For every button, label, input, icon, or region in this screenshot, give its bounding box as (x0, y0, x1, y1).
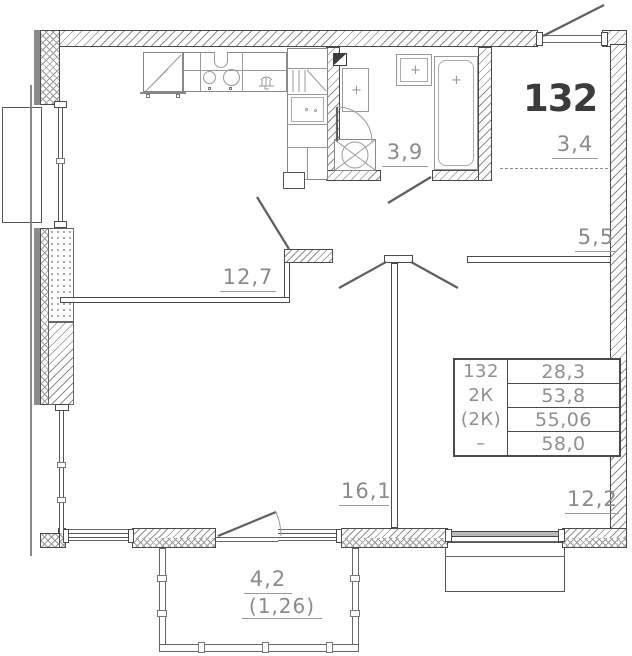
wall-hatch (342, 529, 447, 538)
wall-crosshatch (342, 538, 447, 547)
plumbing-point-mark: + (451, 74, 462, 87)
room-label-corridor: 5,5 (575, 226, 617, 252)
window-post (128, 529, 134, 543)
balcony-door-threshold (216, 541, 278, 542)
ac-basket-bottom-line (445, 556, 565, 557)
table-label: – (455, 431, 507, 455)
floor-plan-132: + + + 12,7 3,9 3,4 5,5 16,1 12,2 4, (0, 0, 632, 656)
cabinet-knob (305, 108, 308, 111)
cabinet-divider (287, 94, 328, 95)
area-table-values: 28,3 53,8 55,06 58,0 (508, 360, 619, 455)
stove-knob (229, 87, 232, 90)
stove-burner-icon (203, 71, 216, 84)
door-swing-arc (337, 107, 372, 142)
window-frame-cap (55, 404, 69, 411)
fridge-foot (176, 94, 180, 98)
entrance-jamb-right (601, 32, 608, 46)
entrance-sill (543, 35, 601, 36)
window-mullion (57, 497, 66, 503)
window-rail (278, 540, 341, 541)
wall-bathroom-bottom-left (326, 170, 381, 181)
window-frame-cap (54, 101, 67, 108)
table-value: 55,06 (508, 408, 619, 432)
glazing-mullion (157, 575, 167, 582)
cabinet-knob (314, 109, 317, 112)
wall-bottom-seg-3 (562, 528, 627, 548)
plumbing-point-mark: + (410, 64, 421, 77)
window-post (445, 529, 452, 542)
glazing-mullion (350, 610, 360, 617)
washing-machine-icon (334, 139, 376, 171)
counter-divider (242, 52, 243, 92)
bathroom-door-leaf (388, 177, 431, 203)
window-balcony (278, 533, 341, 538)
balcony-door-leaf (218, 512, 276, 536)
balcony-glazing-left (159, 548, 166, 648)
wall-crosshatch (133, 538, 215, 547)
table-value: 58,0 (508, 432, 619, 455)
table-label: 132 (455, 360, 507, 384)
bedroom-1-door-leaf (339, 262, 386, 288)
window-rail (66, 540, 131, 541)
window-rail (278, 529, 341, 530)
zone-boundary-dashed-line (500, 168, 608, 169)
entrance-door-leaf (543, 5, 604, 36)
balcony-door-threshold (216, 537, 278, 538)
room-label-balcony: 4,2 (244, 568, 292, 594)
glazing-mullion (350, 575, 360, 582)
plumbing-point-mark: + (351, 84, 362, 97)
wall-corridor-bedroom-2 (467, 256, 611, 263)
table-value: 53,8 (508, 384, 619, 408)
cabinet-divider (287, 124, 328, 125)
wall-left-seg-1 (40, 30, 60, 105)
room-label-balcony-reduced: (1,26) (242, 595, 322, 619)
wall-hatch (133, 529, 215, 538)
room-label-bathroom: 3,9 (382, 141, 428, 167)
cabinet-divider (287, 68, 328, 69)
wall-bottom-seg-2 (341, 528, 448, 548)
table-label: (2К) (455, 408, 507, 432)
ac-basket-left (2, 107, 42, 223)
sink-icon (214, 52, 228, 68)
wall-top (56, 30, 538, 47)
fridge-foot (146, 94, 150, 98)
entrance-sill (543, 42, 601, 43)
entrance-jamb-left (536, 32, 543, 46)
area-info-table: 132 2К (2К) – 28,3 53,8 55,06 58,0 (453, 358, 621, 457)
glazing-mullion (326, 642, 333, 653)
window-post (336, 529, 342, 543)
glazing-mullion (198, 642, 205, 653)
window-bedroom-2 (448, 531, 562, 537)
window-mullion (57, 462, 66, 468)
wall-door-post (384, 255, 413, 263)
window-rail (448, 541, 562, 542)
room-label-kitchen-living: 12,7 (220, 266, 276, 292)
room-label-hallway: 3,4 (552, 133, 598, 159)
window-rail (66, 529, 131, 530)
window-mullion (56, 158, 65, 164)
room-label-bedroom-2: 12,2 (565, 488, 619, 514)
table-value: 28,3 (508, 360, 619, 384)
wall-kitchen-bottom (60, 297, 290, 303)
glazing-mullion (157, 610, 167, 617)
counter-divider (200, 52, 201, 92)
bedroom-2-door-leaf (411, 262, 458, 288)
cabinet-divider (307, 147, 308, 180)
wall-bottom-seg-1 (132, 528, 216, 548)
wall-right (610, 44, 627, 548)
window-frame-cap (54, 221, 67, 228)
vent-shaft-icon (333, 53, 347, 66)
kitchen-duct-box (283, 172, 305, 189)
balcony-glazing-right (352, 548, 359, 648)
stove-burner-icon (223, 69, 240, 86)
window-kitchen-living (58, 105, 63, 228)
area-table-labels: 132 2К (2К) – (455, 360, 508, 455)
wall-left-seg-3 (40, 533, 60, 548)
fridge-icon (143, 52, 183, 92)
stove-knob (208, 87, 211, 90)
glazing-mullion (262, 642, 269, 653)
wall-corridor-stub (284, 249, 333, 263)
wall-hatch (563, 529, 626, 538)
window-bedroom-1-bottom (66, 533, 131, 538)
facade-ledge-line (30, 85, 32, 556)
wall-bathroom-right (478, 47, 492, 181)
window-post (558, 529, 565, 542)
room-label-bedroom-1: 16,1 (339, 480, 389, 506)
apartment-number: 132 (523, 80, 597, 117)
wall-bedrooms-divider (391, 263, 398, 528)
window-bedroom-1-side (59, 410, 64, 533)
window-post (63, 529, 69, 543)
wall-crosshatch (563, 538, 626, 547)
kitchen-door-leaf (257, 197, 289, 249)
wall-left-concrete-column (48, 228, 74, 322)
wall-left-pier (48, 322, 74, 405)
table-label: 2К (455, 384, 507, 408)
ac-basket-bottom (445, 542, 565, 592)
